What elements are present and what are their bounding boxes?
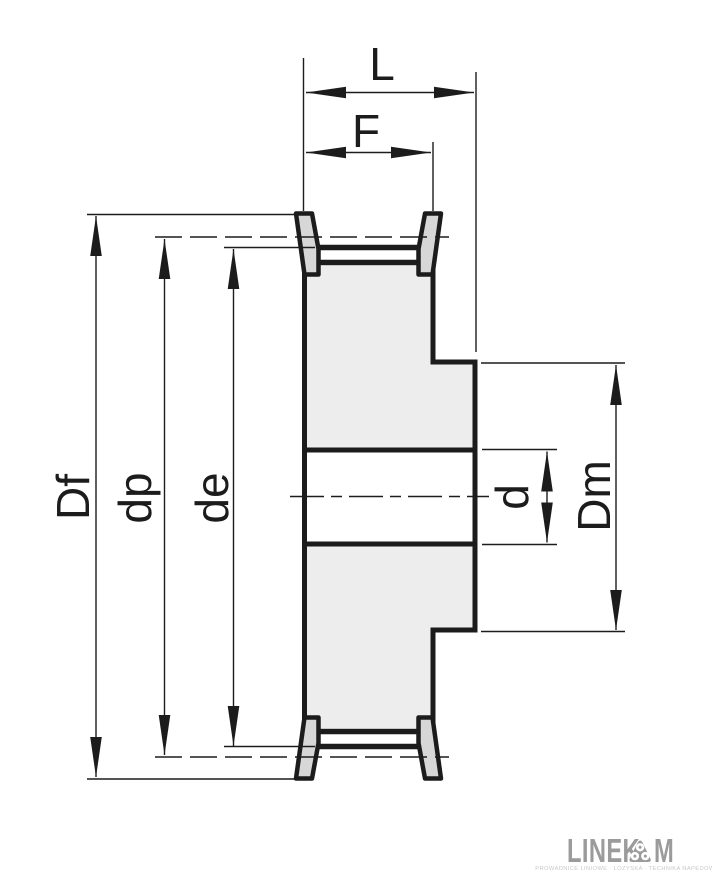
drawing-page: L F Df dp de d Dm LINEK M PROWADNICE LIN…: [0, 0, 712, 881]
bore-strip: [300, 453, 475, 542]
label-de: de: [186, 472, 238, 523]
logo-text-linek: LINEK: [567, 833, 640, 870]
flange-top-left: [296, 214, 319, 275]
flange-bottom-right: [419, 718, 442, 779]
label-Dm: Dm: [568, 460, 620, 532]
label-F: F: [352, 105, 380, 157]
pulley-section-drawing: L F Df dp de d Dm LINEK M PROWADNICE LIN…: [0, 0, 712, 881]
flange-bottom-left: [296, 718, 319, 779]
logo-text-m: M: [654, 833, 674, 870]
label-d: d: [486, 484, 538, 510]
label-L: L: [369, 38, 395, 90]
label-dp: dp: [109, 472, 161, 523]
linekom-logo: LINEK M PROWADNICE LINIOWE · LOZYSKA · T…: [535, 833, 712, 872]
pulley-body: [300, 241, 475, 753]
logo-tagline-microtext: PROWADNICE LINIOWE · LOZYSKA · TECHNIKA …: [535, 866, 712, 872]
label-Df: Df: [47, 474, 99, 520]
flange-top-right: [419, 214, 442, 275]
